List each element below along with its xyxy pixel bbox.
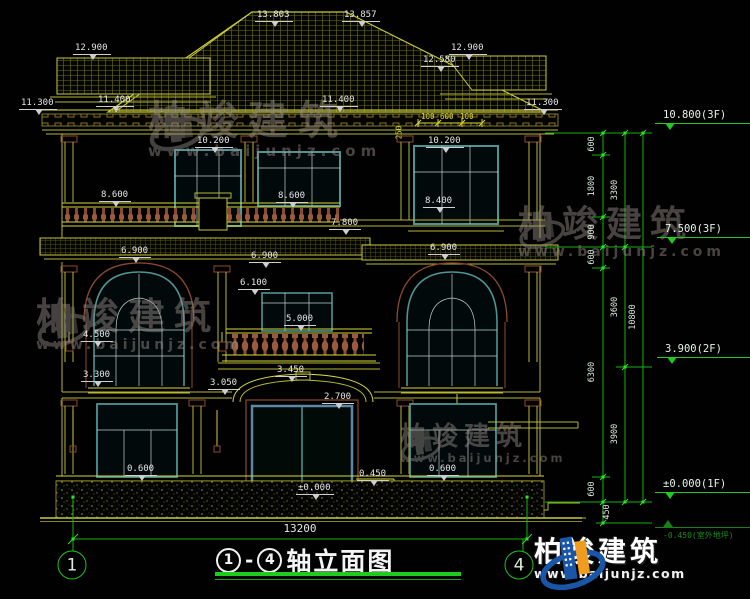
title-underline [215, 572, 461, 576]
dimension-value: 3600 [610, 297, 620, 317]
title-axis-circle-end: 4 [257, 548, 282, 573]
dimension-value: 1800 [587, 176, 597, 196]
small-dimension: 250 [394, 126, 403, 140]
dimension-value: 450 [602, 504, 612, 519]
side-ledge [488, 422, 578, 428]
level-marker: 7.500(3F) [657, 223, 750, 238]
title-dash: - [245, 550, 253, 570]
elevation-drawing [0, 0, 750, 599]
brand-logo-icon [534, 531, 614, 593]
level-marker: 3.900(2F) [657, 343, 750, 358]
elevation-label: ±0.000 [296, 483, 334, 495]
balcony-2f [218, 329, 380, 369]
elevation-label: 12.900 [449, 43, 487, 55]
elevation-label: 0.600 [427, 464, 459, 476]
elevation-label: 6.900 [249, 251, 281, 263]
elevation-label: 11.300 [524, 98, 562, 110]
elevation-label: 11.300 [19, 98, 57, 110]
elevation-label: 10.200 [195, 136, 233, 148]
elevation-label: 0.600 [125, 464, 157, 476]
brand-logo[interactable]: 柏竣建筑 www.baijunjz.com [534, 531, 686, 581]
small-dimension: 100 [460, 112, 474, 121]
cornice-7500 [40, 238, 558, 264]
dimension-value: 900 [587, 224, 597, 239]
elevation-label: 6.900 [428, 243, 460, 255]
elevation-label: 13.803 [255, 10, 293, 22]
elevation-label: 12.900 [73, 43, 111, 55]
elevation-label: 10.200 [426, 136, 464, 148]
dimension-value: 3900 [610, 424, 620, 444]
elevation-label: 6.100 [238, 278, 270, 290]
dimension-value: 600 [587, 249, 597, 264]
elevation-label: 8.600 [276, 191, 308, 203]
elevation-label: 2.700 [322, 392, 354, 404]
elevation-label: 13.857 [342, 10, 380, 22]
elevation-label: 3.450 [275, 365, 307, 377]
elevation-label: 0.450 [357, 469, 389, 481]
small-dimension: 600 [440, 112, 454, 121]
elevation-label: 3.050 [208, 378, 240, 390]
elevation-label: 3.300 [81, 370, 113, 382]
elevation-label: 7.800 [329, 218, 361, 230]
axis-bubble-1: 1 [58, 551, 87, 580]
elevation-label: 8.400 [423, 196, 455, 208]
cad-canvas: 柏竣建筑 www.baijunjz.com 柏竣建筑 www.baijunjz.… [0, 0, 750, 599]
dimension-value: 10800 [628, 304, 638, 330]
axis-bubble-4: 4 [505, 551, 534, 580]
dimension-value: 6300 [587, 362, 597, 382]
elevation-label: 11.400 [96, 95, 134, 107]
elevation-label: 12.580 [421, 55, 459, 67]
title-axis-circle-start: 1 [216, 548, 241, 573]
eave-band [42, 110, 558, 134]
elevation-label: 11.400 [320, 95, 358, 107]
title-underline-thin [215, 579, 461, 580]
level-marker: 10.800(3F) [655, 109, 750, 124]
dimension-value: 600 [587, 136, 597, 151]
small-dimension: 100 [421, 112, 435, 121]
dimension-value: 600 [587, 481, 597, 496]
overall-dimension: 13200 [283, 522, 316, 535]
second-floor [61, 262, 541, 402]
window-3f-right [408, 146, 504, 231]
dimension-value: 3300 [610, 180, 620, 200]
third-floor [61, 134, 545, 238]
elevation-label: 5.000 [284, 314, 316, 326]
elevation-label: 6.900 [119, 246, 151, 258]
elevation-label: 4.500 [81, 330, 113, 342]
elevation-label: 8.600 [99, 190, 131, 202]
arch-window-2f-right [397, 263, 507, 393]
level-marker: ±0.000(1F) [655, 478, 750, 493]
